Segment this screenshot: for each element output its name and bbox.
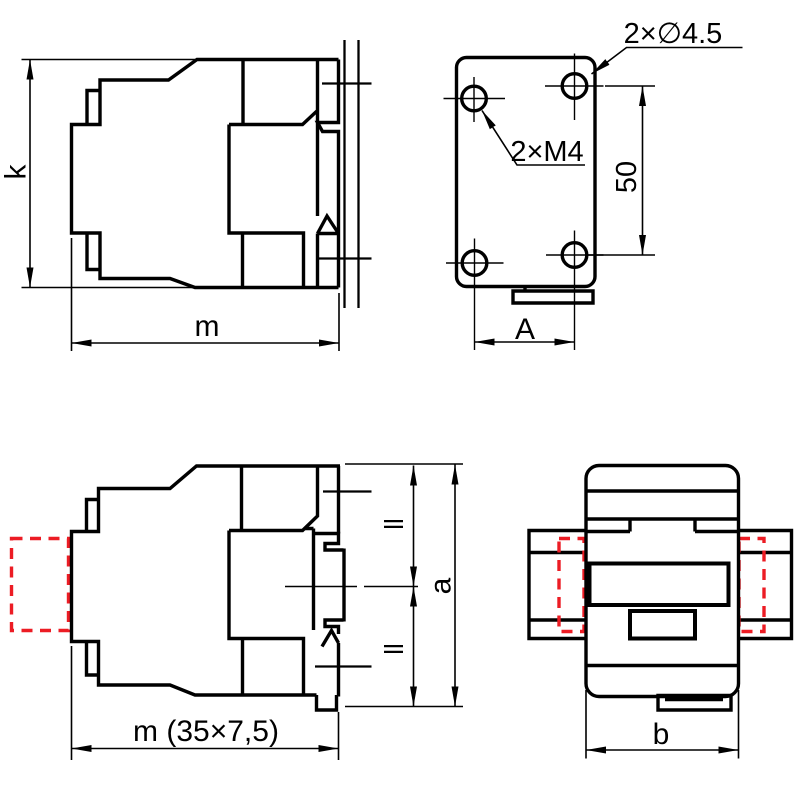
rail-side-view: m (35×7,5) ll ll a [12,464,464,760]
k-extension-lines [22,60,198,288]
leader-line-diameter [592,48,743,75]
tapped-holes-label: 2×M4 [510,136,583,168]
side-view-lower-lug [87,233,100,270]
technical-drawing-canvas: k m 2×∅4.5 2×M4 50 [0,0,800,800]
side-view-right-edge [318,60,339,288]
dim-50-label: 50 [611,161,643,193]
top-view: b [529,466,792,759]
m-label: m [195,310,220,343]
top-view-body-outline [586,466,739,697]
dimension-m-rail: m (35×7,5) [72,646,339,760]
din-rail-lines [317,40,372,308]
m-rail-label: m (35×7,5) [133,715,279,748]
technical-drawing-page: k m 2×∅4.5 2×M4 50 [0,0,800,800]
rail-view-internal-lines [229,466,339,695]
through-holes-label: 2×∅4.5 [624,18,723,50]
side-view: k m [0,40,372,351]
rail-view-body-outline [72,466,341,695]
dimension-a-ll: ll ll a [345,464,463,707]
leader-tapped-holes: 2×M4 [482,111,585,169]
plate-bottom-tab [513,287,593,303]
side-view-clip-spring [318,216,339,234]
dimension-A: A [475,313,575,346]
din-clip-detail [305,529,344,697]
rail-view-upper-lug [87,500,99,532]
mounting-plate-view: 2×∅4.5 2×M4 50 A [444,18,743,350]
accessory-dashed-outline [12,539,69,631]
dim-A-label: A [515,313,535,346]
leader-through-holes: 2×∅4.5 [592,18,743,74]
side-view-upper-lug [87,91,100,125]
top-view-center-window [590,564,729,606]
b-label: b [653,718,670,751]
rail-view-foot [317,695,337,710]
ll-lower-label: ll [379,643,409,655]
ll-upper-label: ll [379,518,409,530]
top-view-small-window [630,611,695,639]
side-view-internal-lines [229,60,318,288]
dimension-m: m [72,238,340,351]
a-label: a [425,577,458,594]
side-view-body-outline [72,60,339,288]
k-label: k [0,164,33,180]
right-wing [739,531,792,639]
rail-view-lower-lug [87,642,99,676]
